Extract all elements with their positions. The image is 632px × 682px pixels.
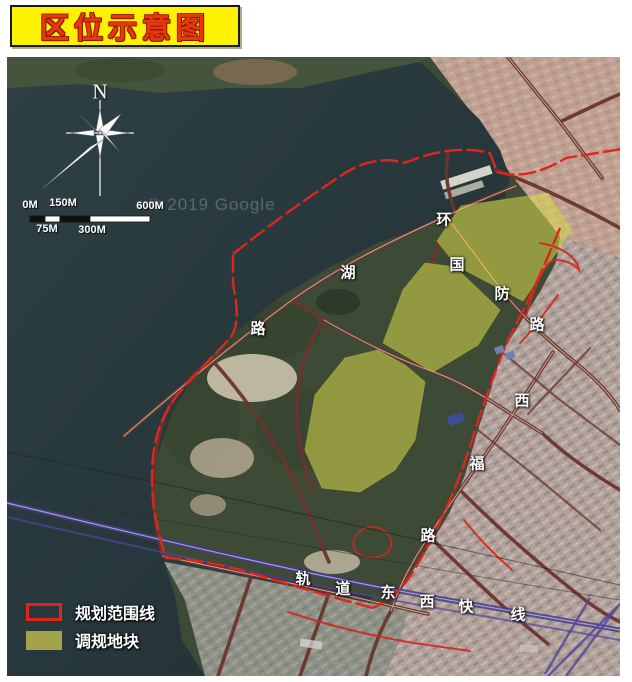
scale-tick-label: 600M bbox=[136, 200, 164, 212]
road-label-char: 东 bbox=[380, 582, 395, 603]
legend-label-boundary: 规划范围线 bbox=[75, 600, 155, 624]
road-label-char: 防 bbox=[494, 283, 509, 304]
boundary-line-swatch bbox=[26, 603, 62, 621]
road-label-char: 快 bbox=[458, 596, 473, 617]
road-label-char: 道 bbox=[335, 578, 350, 599]
road-label-char: 轨 bbox=[295, 568, 310, 589]
page-title: 区位示意图 bbox=[40, 5, 210, 47]
scale-tick-label: 300M bbox=[78, 224, 106, 236]
location-schematic-figure: 区位示意图 N © 2019 Google 0M150M600M75M300M … bbox=[0, 0, 632, 682]
road-label-char: 环 bbox=[436, 209, 451, 230]
north-label: N bbox=[92, 80, 107, 105]
road-label-char: 线 bbox=[510, 604, 525, 625]
plot-swatch bbox=[26, 631, 62, 650]
scale-tick-label: 0M bbox=[22, 199, 37, 211]
scale-bar bbox=[30, 216, 150, 222]
road-label-char: 西 bbox=[419, 591, 434, 612]
title-box: 区位示意图 bbox=[10, 5, 240, 47]
road-label-char: 国 bbox=[449, 254, 464, 275]
legend-item-boundary: 规划范围线 bbox=[26, 600, 155, 624]
imagery-watermark: © 2019 Google bbox=[148, 195, 276, 215]
legend-item-plot: 调规地块 bbox=[26, 628, 139, 652]
scale-tick-label: 75M bbox=[36, 223, 57, 235]
scale-tick-label: 150M bbox=[49, 197, 77, 209]
road-label-char: 西 bbox=[514, 390, 529, 411]
road-label-char: 路 bbox=[420, 525, 435, 546]
legend-label-plot: 调规地块 bbox=[75, 628, 139, 652]
road-label-char: 路 bbox=[250, 318, 265, 339]
road-label-char: 福 bbox=[469, 453, 484, 474]
road-label-char: 路 bbox=[529, 314, 544, 335]
road-label-char: 湖 bbox=[340, 262, 355, 283]
